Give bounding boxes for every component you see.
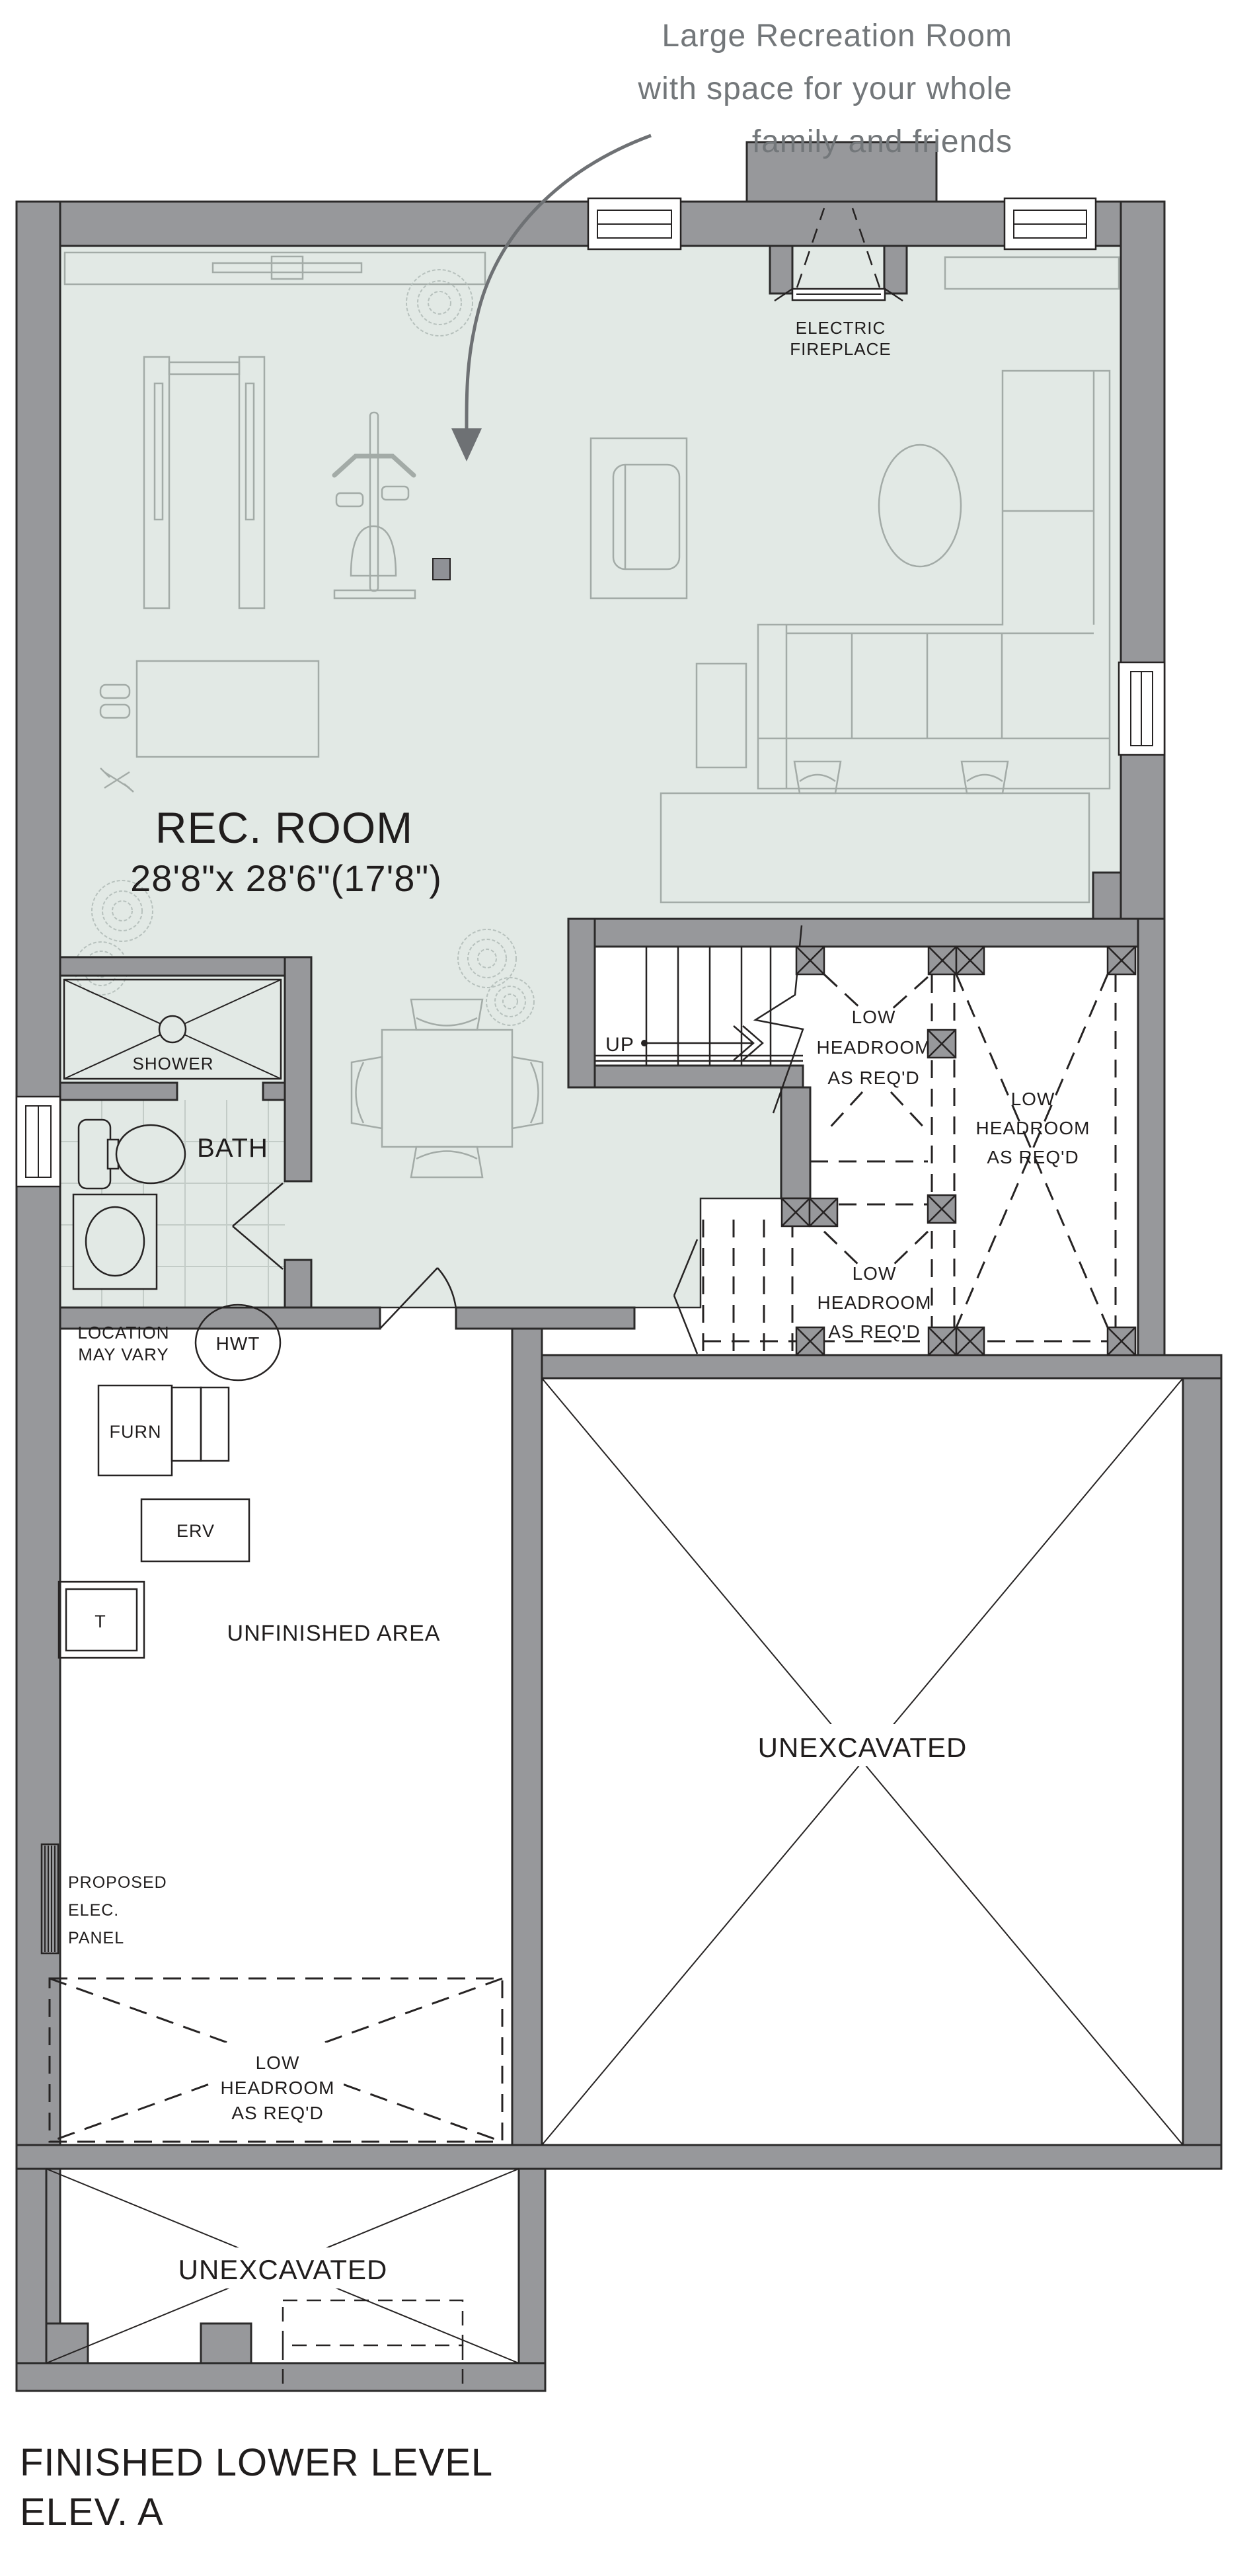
annotation-line-1: Large Recreation Room [662,19,1012,54]
elec-panel-line1: PROPOSED [68,1873,167,1892]
foundation-pier [201,2323,251,2363]
up-label: UP [605,1034,634,1056]
low-headroom-2-line2: HEADROOM [976,1118,1090,1138]
annotation-line-2: with space for your whole [637,71,1012,106]
fireplace-label-2: FIREPLACE [790,339,892,359]
annotation-line-3: family and friends [752,124,1012,159]
unexcavated-right-label: UNEXCAVATED [758,1732,968,1763]
toilet [79,1120,185,1189]
window-top-left [588,198,681,249]
window-top-right [1005,198,1096,249]
low-headroom-3-line3: AS REQ'D [828,1321,920,1342]
low-headroom-3-line2: HEADROOM [818,1292,932,1313]
low-headroom-4-line3: AS REQ'D [231,2103,323,2123]
low-headroom-4-line2: HEADROOM [221,2078,335,2098]
shower-label: SHOWER [133,1054,214,1073]
furnace-duct [172,1387,201,1461]
floor-plan-page: Large Recreation Room with space for you… [0,0,1255,2576]
furnace-duct [201,1387,229,1461]
elec-panel-line2: ELEC. [68,1901,119,1920]
hwt-label: HWT [216,1333,260,1354]
window-left-wall-bath [17,1097,60,1187]
foundation-pier [46,2323,88,2363]
low-headroom-4-line1: LOW [256,2052,300,2073]
window-right-wall [1119,662,1164,755]
location-note-line1: LOCATION [78,1323,170,1343]
plan-title-line1: FINISHED LOWER LEVEL [20,2441,493,2484]
t-label: T [95,1612,106,1631]
low-headroom-1-line2: HEADROOM [817,1037,931,1058]
low-headroom-1-line1: LOW [852,1007,896,1027]
bath-label: BATH [197,1134,268,1163]
sink-vanity [73,1194,157,1289]
floor-plan-drawing: Large Recreation Room with space for you… [0,0,1255,2576]
elec-panel-line3: PANEL [68,1929,124,1947]
low-headroom-2-line3: AS REQ'D [987,1147,1079,1167]
fireplace-label-1: ELECTRIC [796,318,886,338]
rec-room-dims: 28'8"x 28'6"(17'8") [130,857,442,899]
low-headroom-1-line3: AS REQ'D [827,1068,919,1088]
low-headroom-2-line1: LOW [1011,1089,1055,1109]
unexcavated-bottom-label: UNEXCAVATED [178,2254,388,2285]
furn-label: FURN [110,1422,162,1442]
erv-label: ERV [176,1521,215,1541]
rec-room-name: REC. ROOM [155,803,413,852]
plan-title-line2: ELEV. A [20,2491,164,2534]
structural-post [433,559,450,580]
unfinished-area-label: UNFINISHED AREA [227,1621,441,1646]
low-headroom-3-line1: LOW [853,1263,897,1284]
location-note-line2: MAY VARY [78,1345,169,1364]
